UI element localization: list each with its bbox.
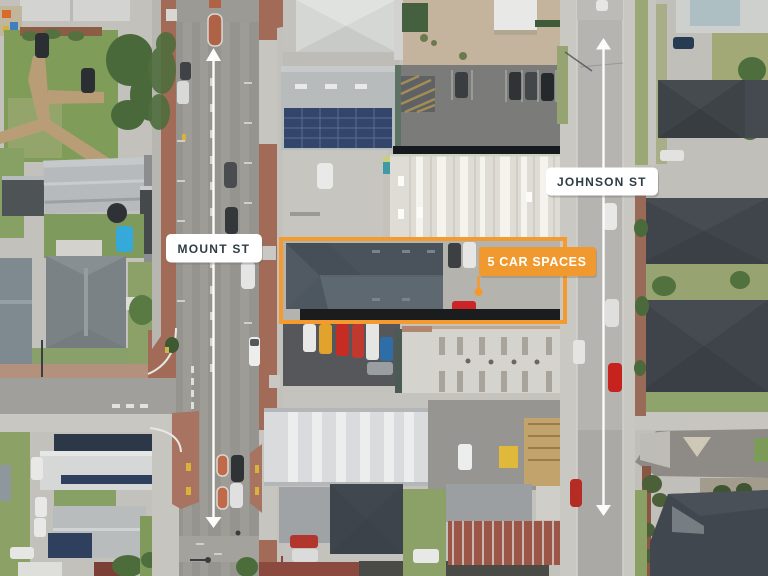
svg-text:MOUNT ST: MOUNT ST	[178, 242, 251, 256]
svg-text:5 CAR SPACES: 5 CAR SPACES	[488, 255, 588, 269]
svg-text:JOHNSON ST: JOHNSON ST	[557, 175, 647, 189]
